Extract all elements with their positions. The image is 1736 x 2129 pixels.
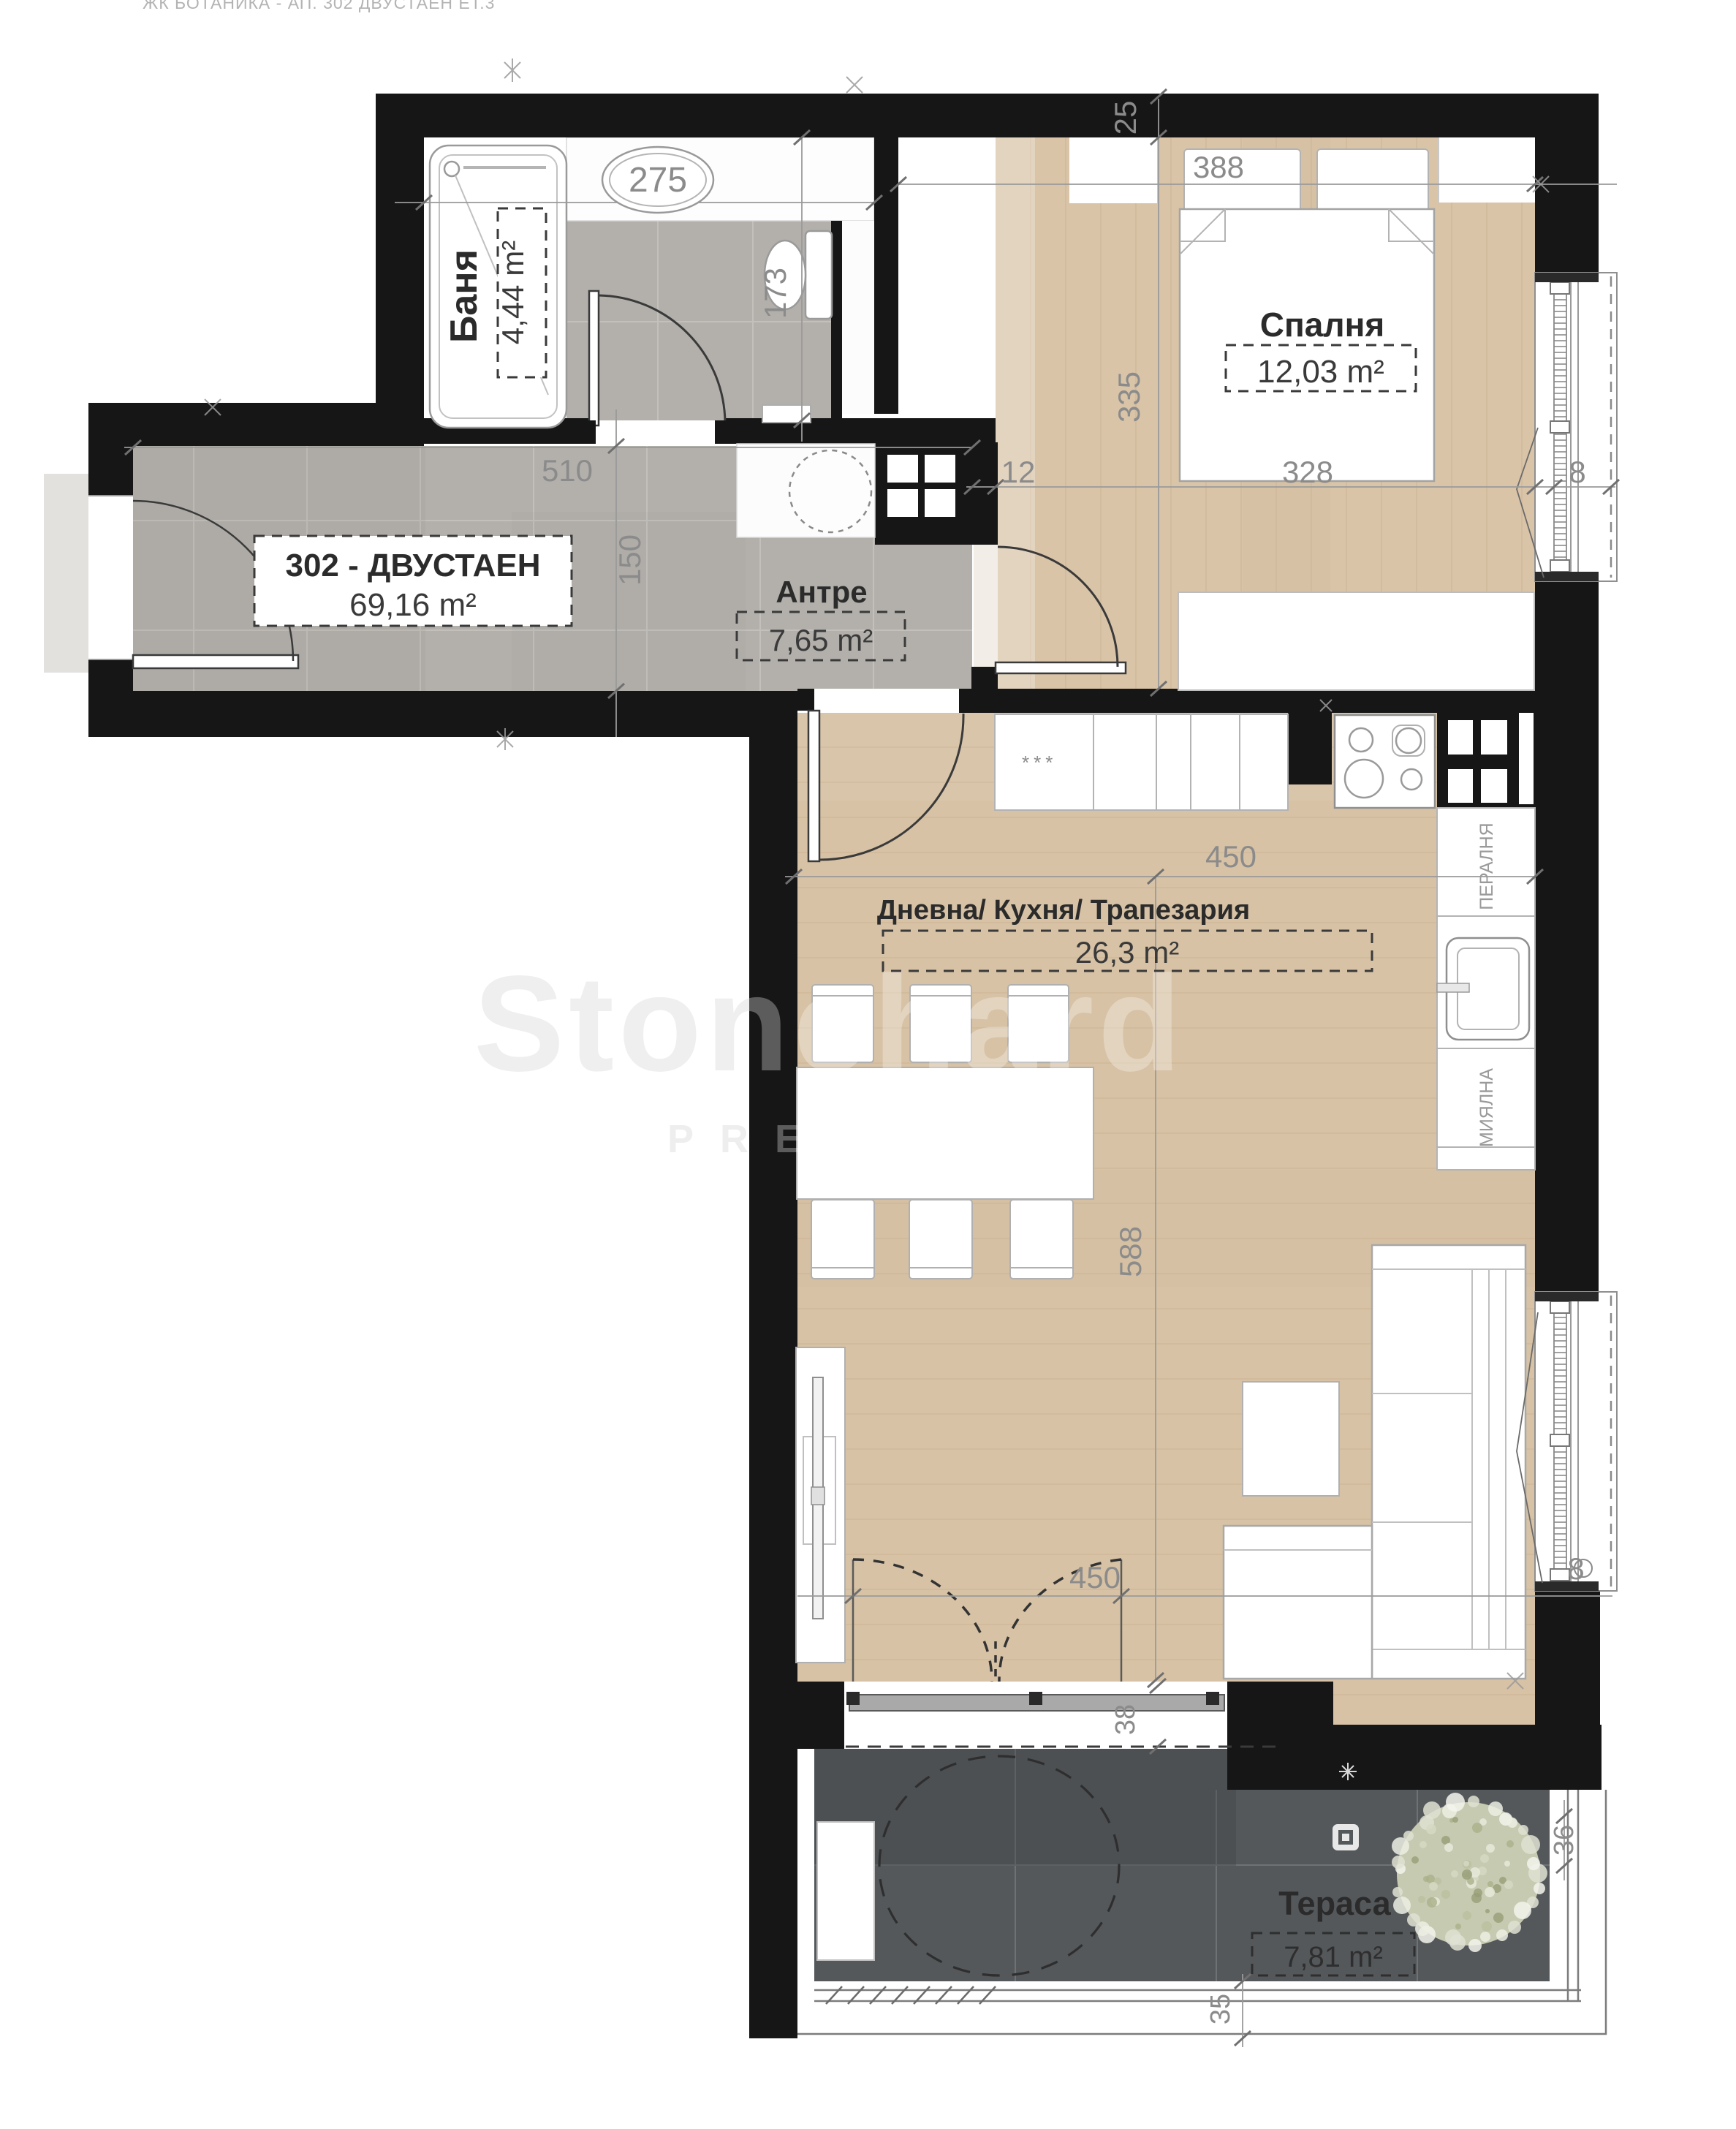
svg-text:Stonehard: Stonehard [474, 948, 1186, 1100]
svg-text:12: 12 [1001, 455, 1036, 489]
svg-text:36: 36 [1549, 1825, 1580, 1856]
svg-text:450: 450 [1069, 1560, 1121, 1595]
svg-text:69,16 m²: 69,16 m² [349, 587, 477, 623]
svg-text:328: 328 [1282, 455, 1333, 489]
svg-text:ЖК БОТАНИКА - АП. 302 ДВУС: ЖК БОТАНИКА - АП. 302 ДВУСТАЕН ЕТ.3 [143, 0, 495, 12]
svg-text:275: 275 [629, 161, 687, 200]
svg-text:510: 510 [542, 453, 593, 488]
svg-text:335: 335 [1112, 371, 1146, 423]
svg-text:***: *** [1022, 752, 1057, 774]
svg-text:12,03 m²: 12,03 m² [1257, 354, 1384, 390]
svg-text:Баня: Баня [443, 249, 485, 343]
svg-text:35: 35 [1205, 1994, 1236, 2024]
svg-text:25: 25 [1108, 101, 1142, 135]
svg-text:450: 450 [1205, 839, 1256, 874]
svg-text:Антре: Антре [776, 575, 867, 609]
svg-text:388: 388 [1193, 150, 1244, 184]
svg-text:PREMIER: PREMIER [667, 1117, 1031, 1161]
svg-text:38: 38 [1110, 1704, 1141, 1735]
svg-text:8: 8 [1569, 455, 1585, 489]
svg-text:8: 8 [1567, 1551, 1584, 1586]
svg-text:588: 588 [1113, 1226, 1148, 1277]
svg-text:7,65 m²: 7,65 m² [769, 623, 873, 657]
svg-text:7,81 m²: 7,81 m² [1284, 1941, 1383, 1973]
svg-text:Дневна/ Кухня/ Трапезария: Дневна/ Кухня/ Трапезария [877, 895, 1250, 926]
svg-text:МИЯЛНА: МИЯЛНА [1477, 1068, 1497, 1147]
svg-text:302 - ДВУСТАЕН: 302 - ДВУСТАЕН [285, 548, 540, 583]
svg-text:ПЕРАЛНЯ: ПЕРАЛНЯ [1477, 823, 1497, 910]
svg-text:150: 150 [613, 534, 647, 586]
svg-text:Спалня: Спалня [1260, 306, 1384, 344]
svg-text:Тераса: Тераса [1278, 1885, 1391, 1922]
svg-text:173: 173 [758, 268, 792, 319]
svg-text:4,44 m²: 4,44 m² [496, 241, 530, 344]
